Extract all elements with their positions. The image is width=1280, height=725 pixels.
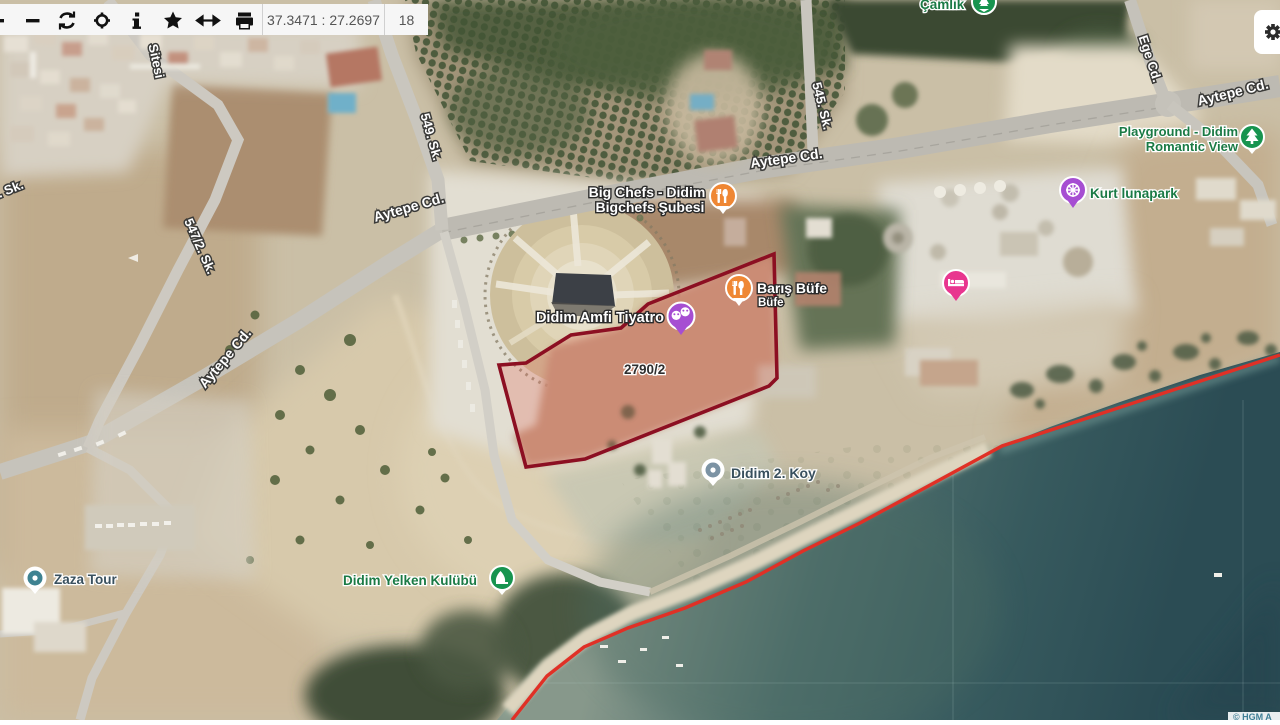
svg-text:Bigchefs Şubesi: Bigchefs Şubesi xyxy=(596,199,705,215)
svg-text:Çamlık: Çamlık xyxy=(920,0,965,12)
svg-text:Romantic View: Romantic View xyxy=(1146,139,1239,154)
svg-text:2790/2: 2790/2 xyxy=(624,362,665,377)
svg-text:Playground - Didim: Playground - Didim xyxy=(1119,124,1238,139)
svg-text:Didim Yelken Kulübü: Didim Yelken Kulübü xyxy=(343,573,477,588)
svg-text:Zaza Tour: Zaza Tour xyxy=(54,572,118,587)
svg-text:Didim 2. Koy: Didim 2. Koy xyxy=(731,465,816,481)
svg-text:Didim Amfi Tiyatro: Didim Amfi Tiyatro xyxy=(536,310,664,326)
svg-text:© HGM A: © HGM A xyxy=(1233,712,1272,720)
svg-text:Big Chefs - Didim: Big Chefs - Didim xyxy=(589,184,706,200)
svg-text:Barış Büfe: Barış Büfe xyxy=(757,280,827,296)
svg-text:Kurt lunapark: Kurt lunapark xyxy=(1090,186,1178,201)
svg-text:Büfe: Büfe xyxy=(758,297,784,309)
